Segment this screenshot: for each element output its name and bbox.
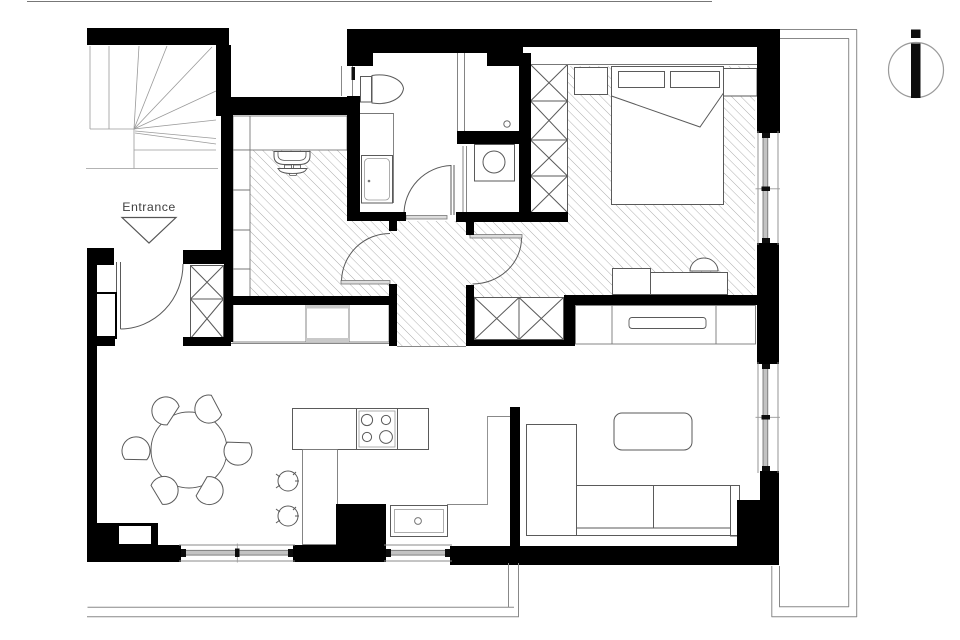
- svg-text:Entrance: Entrance: [122, 200, 176, 214]
